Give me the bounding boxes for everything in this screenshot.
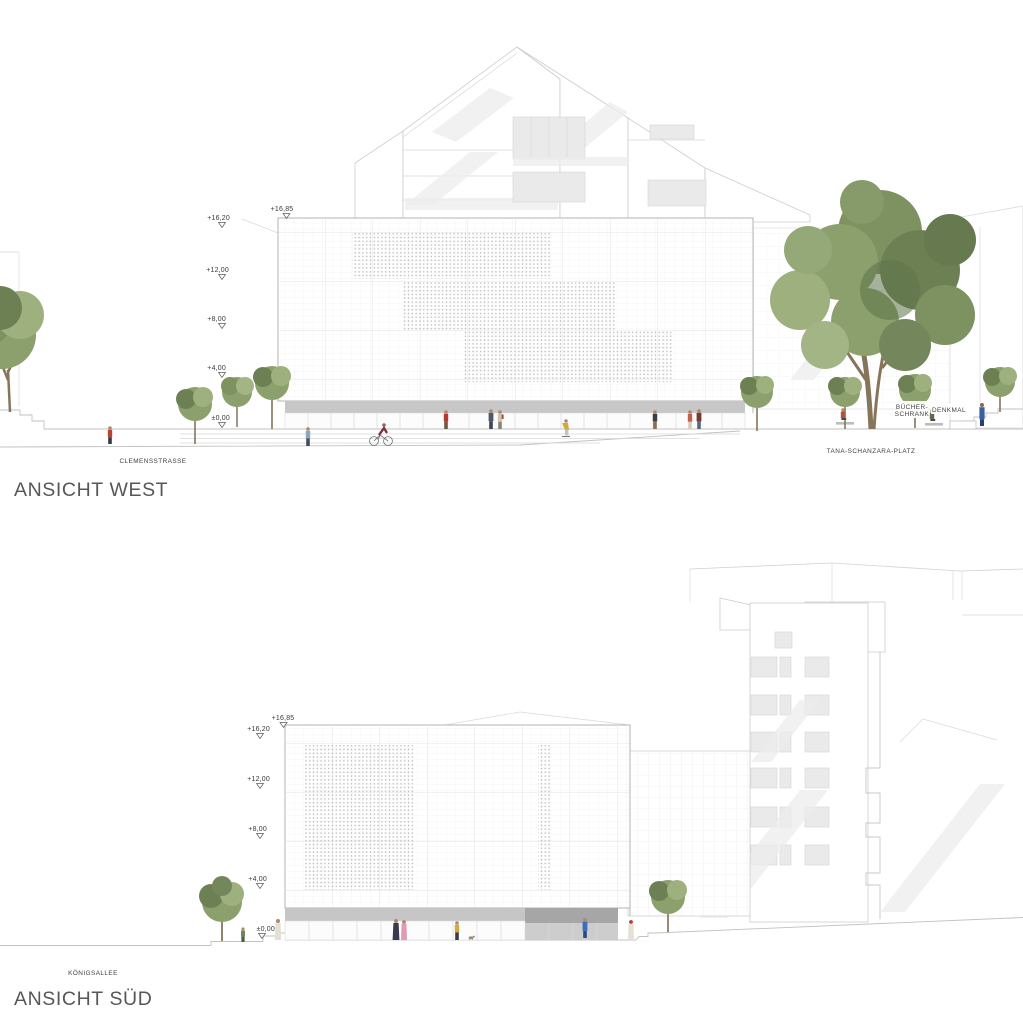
elevation-west-drawing: BÜCHER- SCHRANK DENKMAL CLEMENSSTRASSE T… xyxy=(0,0,1023,512)
bookcase-label: BÜCHER- xyxy=(896,403,928,411)
level-label: +16,85 xyxy=(271,206,294,213)
level-label: +4,00 xyxy=(248,876,267,883)
tree xyxy=(0,286,44,412)
level-label: +8,00 xyxy=(248,826,267,833)
dark-base-block xyxy=(525,908,618,923)
person xyxy=(108,426,112,444)
level-label: +8,00 xyxy=(207,316,226,323)
level-label: +4,00 xyxy=(207,365,226,372)
neighbor-grid-building xyxy=(628,751,750,916)
dark-base-block-glass xyxy=(525,923,618,940)
person xyxy=(275,919,281,940)
elevation-west-title: ANSICHT WEST xyxy=(14,479,168,502)
main-building-west xyxy=(278,218,753,429)
person xyxy=(628,920,634,940)
architectural-sheet: BÜCHER- SCHRANK DENKMAL CLEMENSSTRASSE T… xyxy=(0,0,1023,1024)
tree xyxy=(649,880,687,932)
annotations-sued: KÖNIGSALLEE xyxy=(68,969,118,977)
stepped-edge-building xyxy=(866,652,1005,919)
street-label: CLEMENSSTRASSE xyxy=(119,458,186,465)
level-label: +16,20 xyxy=(247,726,270,733)
elevation-sued-title: ANSICHT SÜD xyxy=(14,988,152,1011)
plaza-label: TANA-SCHANZARA-PLATZ xyxy=(827,448,916,455)
monument-label: DENKMAL xyxy=(932,407,966,414)
bookcase-label: SCHRANK xyxy=(895,411,930,418)
level-label: ±0,00 xyxy=(212,415,230,422)
person xyxy=(306,427,310,446)
base-band xyxy=(285,401,745,413)
level-label: +12,00 xyxy=(247,776,270,783)
level-label: +16,20 xyxy=(207,215,230,222)
bench xyxy=(925,423,943,426)
main-building-sued xyxy=(285,725,630,940)
elevation-sued-drawing: KÖNIGSALLEE +16,85 +16,20 +12,00 +8,00 +… xyxy=(0,512,1023,1024)
level-label: +16,85 xyxy=(272,715,295,722)
person xyxy=(241,927,245,942)
street-label: KÖNIGSALLEE xyxy=(68,969,118,977)
level-label: ±0,00 xyxy=(257,926,275,933)
tree xyxy=(199,876,244,941)
level-label: +12,00 xyxy=(206,267,229,274)
tree xyxy=(176,387,213,444)
monument-pedestal xyxy=(950,421,976,429)
